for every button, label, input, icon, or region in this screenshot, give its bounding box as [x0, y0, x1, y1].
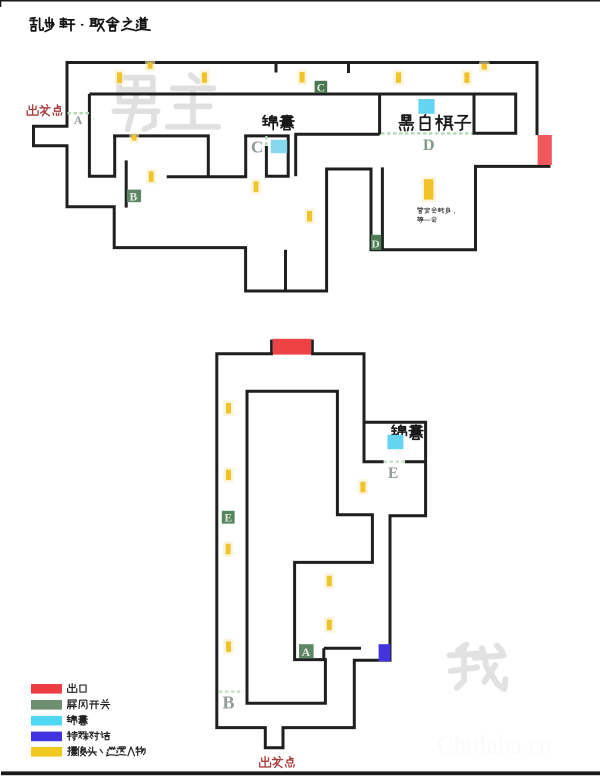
svg-text:C: C: [251, 137, 263, 156]
svg-text:E: E: [388, 465, 398, 482]
svg-text:A: A: [74, 115, 83, 127]
svg-text:D: D: [372, 238, 380, 250]
svg-text:B: B: [130, 192, 138, 204]
svg-text:D: D: [423, 137, 435, 154]
svg-text:C: C: [317, 82, 325, 94]
svg-text:Chufaba.cn: Chufaba.cn: [437, 732, 552, 759]
svg-text:E: E: [225, 513, 233, 525]
svg-text:B: B: [223, 693, 235, 713]
svg-text:A: A: [302, 647, 311, 659]
